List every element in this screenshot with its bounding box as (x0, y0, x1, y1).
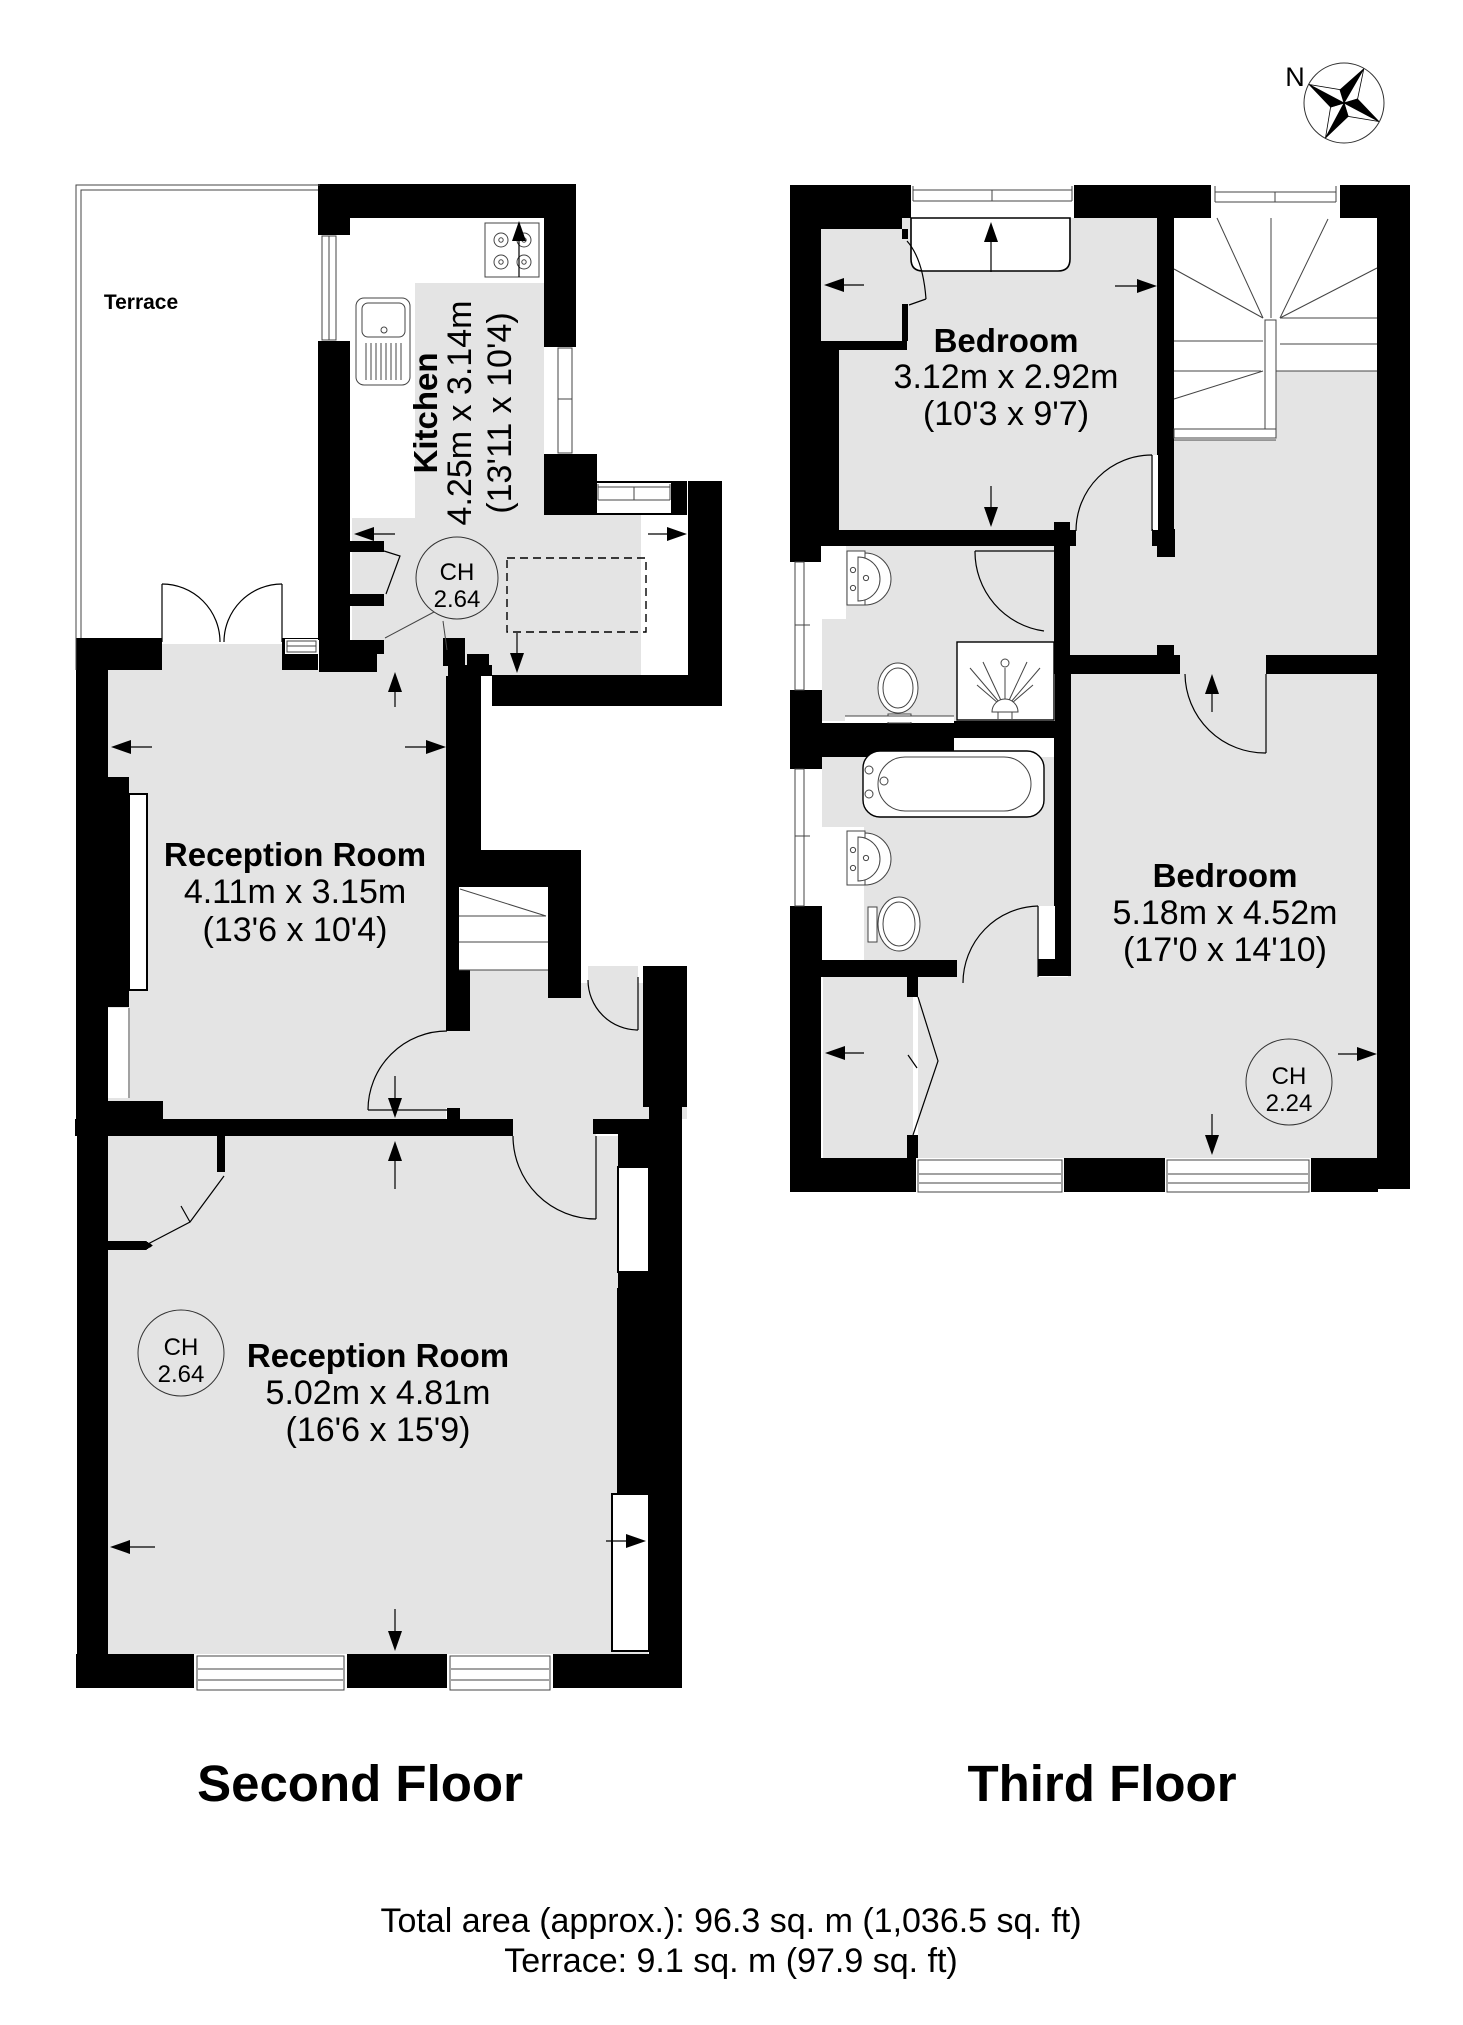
svg-text:2.64: 2.64 (434, 586, 481, 613)
svg-text:(13'6 x 10'4): (13'6 x 10'4) (203, 911, 388, 949)
svg-text:2.24: 2.24 (1266, 1090, 1313, 1117)
svg-text:Second Floor: Second Floor (197, 1755, 523, 1812)
svg-text:Reception Room: Reception Room (164, 836, 426, 873)
svg-text:2.64: 2.64 (158, 1361, 205, 1388)
svg-text:5.18m x 4.52m: 5.18m x 4.52m (1113, 894, 1338, 932)
svg-text:CH: CH (440, 559, 475, 586)
svg-text:Total area (approx.): 96.3 sq.: Total area (approx.): 96.3 sq. m (1,036.… (380, 1902, 1081, 1940)
svg-text:N: N (1285, 62, 1305, 92)
svg-text:4.25m x 3.14m: 4.25m x 3.14m (441, 301, 479, 526)
svg-text:Third Floor: Third Floor (967, 1755, 1236, 1812)
svg-text:4.11m x 3.15m: 4.11m x 3.15m (184, 873, 406, 911)
svg-text:(13'11 x 10'4): (13'11 x 10'4) (481, 312, 519, 513)
svg-text:3.12m x 2.92m: 3.12m x 2.92m (894, 358, 1119, 396)
svg-text:Bedroom: Bedroom (934, 322, 1079, 359)
svg-text:(17'0 x 14'10): (17'0 x 14'10) (1123, 931, 1327, 969)
svg-text:Terrace: Terrace (104, 291, 178, 314)
svg-text:5.02m x 4.81m: 5.02m x 4.81m (266, 1374, 491, 1412)
svg-text:Kitchen: Kitchen (407, 352, 444, 473)
svg-text:Reception Room: Reception Room (247, 1337, 509, 1374)
svg-text:(10'3 x 9'7): (10'3 x 9'7) (923, 395, 1089, 433)
svg-text:Terrace: 9.1 sq. m (97.9 sq. f: Terrace: 9.1 sq. m (97.9 sq. ft) (504, 1942, 958, 1980)
svg-text:Bedroom: Bedroom (1153, 857, 1298, 894)
svg-text:CH: CH (164, 1334, 199, 1361)
svg-text:CH: CH (1272, 1063, 1307, 1090)
svg-text:(16'6 x 15'9): (16'6 x 15'9) (286, 1411, 471, 1449)
